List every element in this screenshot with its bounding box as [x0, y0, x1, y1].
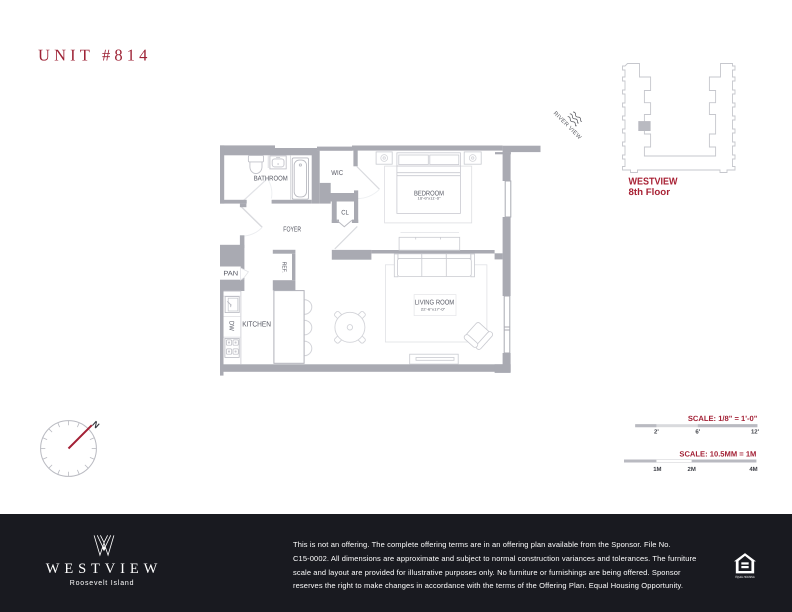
- svg-text:KITCHEN: KITCHEN: [242, 320, 271, 329]
- svg-text:FOYER: FOYER: [283, 224, 301, 233]
- svg-text:10'-6"x11'-0": 10'-6"x11'-0": [418, 197, 442, 201]
- svg-text:RIVER VIEW: RIVER VIEW: [552, 111, 583, 142]
- svg-text:6': 6': [695, 429, 700, 436]
- svg-text:1M: 1M: [653, 466, 661, 473]
- svg-text:SCALE: 10.5MM = 1M: SCALE: 10.5MM = 1M: [679, 449, 756, 458]
- svg-text:4M: 4M: [749, 466, 757, 473]
- svg-text:WIC: WIC: [331, 170, 343, 177]
- svg-text:REF.: REF.: [280, 262, 286, 273]
- svg-text:LIVING ROOM: LIVING ROOM: [415, 300, 455, 307]
- svg-text:22'-6"x17'-0": 22'-6"x17'-0": [421, 307, 446, 311]
- svg-text:CL: CL: [341, 209, 349, 216]
- svg-text:2': 2': [654, 429, 659, 436]
- svg-text:PAN: PAN: [223, 270, 238, 277]
- svg-text:DW: DW: [228, 321, 235, 331]
- svg-text:SCALE: 1/8" = 1'-0": SCALE: 1/8" = 1'-0": [688, 414, 758, 423]
- svg-text:2M: 2M: [688, 466, 696, 473]
- svg-text:8th Floor: 8th Floor: [629, 187, 671, 198]
- svg-text:EQUAL HOUSING: EQUAL HOUSING: [735, 575, 754, 579]
- svg-text:BATHROOM: BATHROOM: [254, 175, 288, 182]
- svg-text:12': 12': [751, 429, 760, 436]
- svg-text:UNIT #814: UNIT #814: [38, 46, 152, 65]
- svg-text:N: N: [90, 419, 101, 431]
